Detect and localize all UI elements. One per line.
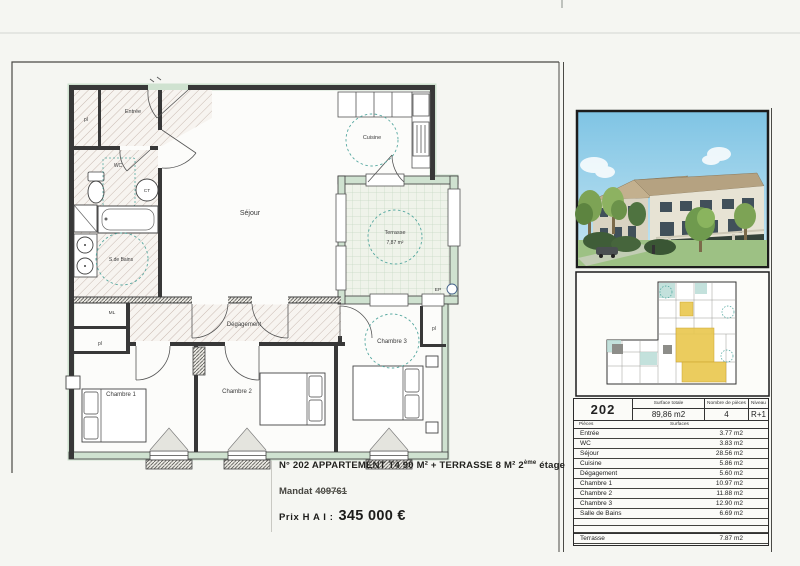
table-row-empty (574, 544, 768, 546)
nb-pieces-value: 4 (705, 409, 748, 420)
surface-table-header: 202 Surface totale 89,86 m2 Nombre de pi… (574, 399, 768, 421)
listing-title: N° 202 APPARTEMENT T4 90 M² + TERRASSE 8… (279, 460, 571, 471)
mandat-number: 409761 (315, 486, 347, 497)
closet-label-pl-3: pl (432, 326, 436, 332)
building-photo (575, 111, 768, 267)
level-mini-plan (576, 272, 769, 396)
closet-label-pl-2: pl (98, 341, 102, 347)
boiler-label-ct: CT (144, 188, 150, 194)
ep-label: EP (435, 287, 441, 293)
room-label-cuisine: Cuisine (363, 135, 381, 141)
table-row: Entrée3.77 m2 (574, 429, 768, 439)
room-label-chambre1: Chambre 1 (106, 392, 136, 398)
floor-plan: Entrée pl WC CT S.de Bains ML pl Séjour … (66, 77, 460, 469)
room-label-terrasse: Terrasse (384, 230, 405, 236)
table-row: WC3.83 m2 (574, 439, 768, 449)
closet-label-pl-1: pl (84, 117, 88, 123)
price-line: Prix H A I :345 000 € (279, 507, 406, 525)
room-label-terrasse-area: 7,87 m² (387, 240, 404, 246)
room-label-sejour: Séjour (240, 210, 261, 217)
scanned-listing-sheet: Entrée pl WC CT S.de Bains ML pl Séjour … (0, 0, 800, 566)
table-row-empty (574, 519, 768, 526)
surface-table-subheader: Pièces Surfaces (574, 421, 768, 429)
mandat-line: Mandat409761 (279, 486, 347, 497)
room-label-sdb: S.de Bains (109, 257, 134, 263)
table-row-terrasse: Terrasse7.87 m2 (574, 533, 768, 544)
surface-totale-label: Surface totale (633, 399, 704, 409)
surface-totale-value: 89,86 m2 (633, 409, 704, 420)
room-label-degagement: Dégagement (227, 322, 262, 328)
surface-table: 202 Surface totale 89,86 m2 Nombre de pi… (573, 398, 769, 546)
title-superscript: ème (524, 460, 537, 466)
table-row: Chambre 110.97 m2 (574, 479, 768, 489)
room-label-chambre2: Chambre 2 (222, 389, 252, 395)
table-row: Dégagement5.60 m2 (574, 469, 768, 479)
table-row: Chambre 211.88 m2 (574, 489, 768, 499)
table-row: Chambre 312.90 m2 (574, 499, 768, 509)
room-label-chambre3: Chambre 3 (377, 339, 407, 345)
partition-wall (74, 296, 341, 305)
apartment-number: 202 (574, 399, 633, 420)
table-row: Salle de Bains6.69 m2 (574, 509, 768, 519)
person-figure (652, 245, 655, 254)
duct-block (193, 347, 205, 375)
ep-drain-symbol (447, 284, 457, 294)
table-row-empty (574, 526, 768, 533)
table-row: Séjour28.56 m2 (574, 449, 768, 459)
nb-pieces-label: Nombre de pièces (705, 399, 748, 409)
niveau-value: R+1 (749, 409, 768, 420)
table-row: Cuisine5.86 m2 (574, 459, 768, 469)
price-label: Prix H A I : (279, 512, 334, 523)
room-label-entree: Entrée (125, 109, 141, 115)
appliance-label-ml: ML (109, 310, 116, 316)
price-value: 345 000 € (339, 508, 406, 524)
niveau-label: Niveau (749, 399, 768, 409)
room-label-wc: WC (114, 163, 123, 169)
